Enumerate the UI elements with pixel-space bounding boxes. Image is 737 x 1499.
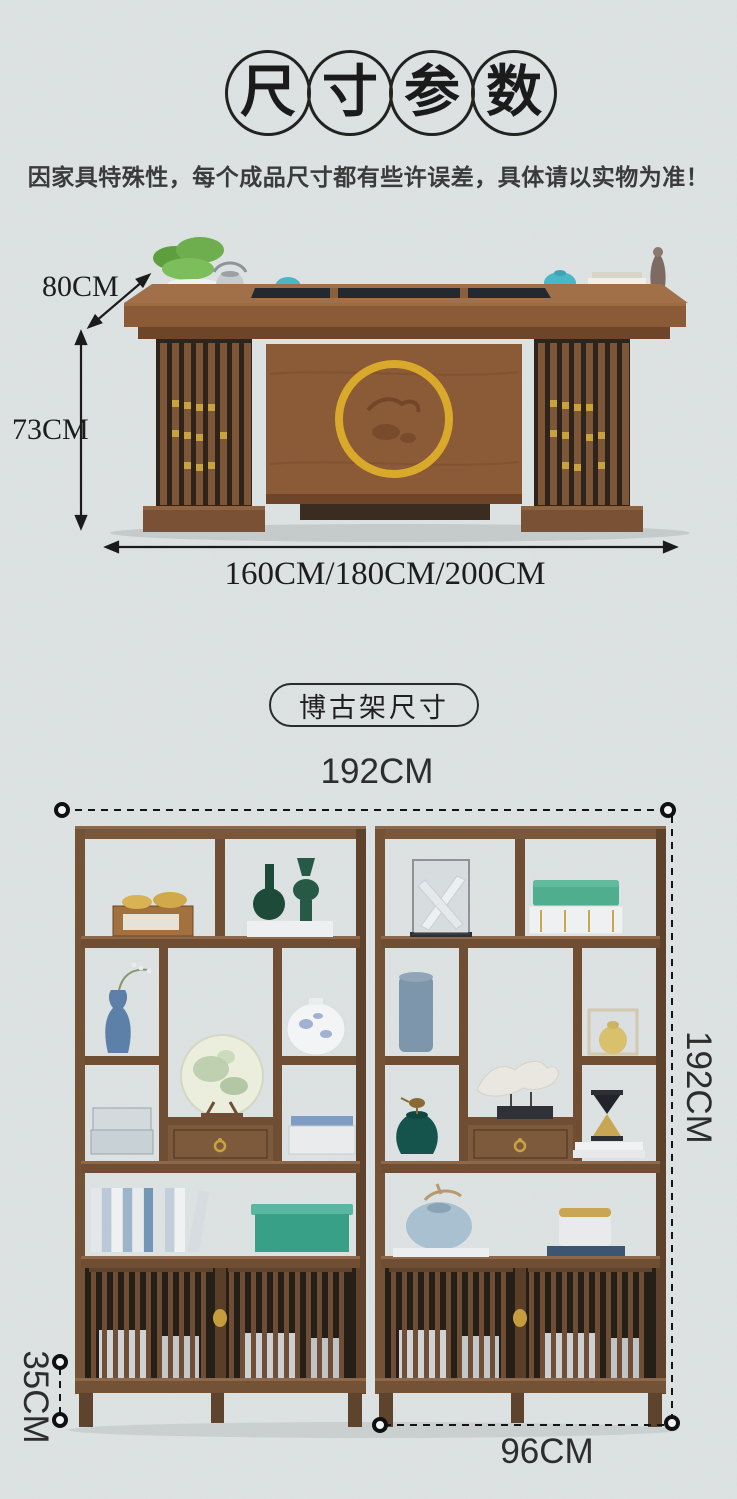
shelf-section-title: 博古架尺寸 xyxy=(299,686,449,725)
title-character: 参 xyxy=(404,65,460,121)
product-dimensions-page: 尺 寸 参 数 因家具特殊性，每个成品尺寸都有些许误差，具体请以实物为准！ 80… xyxy=(0,0,737,1499)
desk-depth-label: 80CM xyxy=(42,270,119,304)
furniture-illustration xyxy=(0,0,737,1499)
desk-body xyxy=(124,284,688,532)
shelf-base-height-label: 35CM xyxy=(15,1342,55,1452)
title-character-circle: 尺 xyxy=(225,50,311,136)
desk-illustration xyxy=(76,237,690,552)
desk-width-label: 160CM/180CM/200CM xyxy=(85,556,685,593)
title-character-circle: 参 xyxy=(389,50,475,136)
title-character: 尺 xyxy=(240,65,296,121)
title-character: 数 xyxy=(486,65,542,121)
title-character-circle: 数 xyxy=(471,50,557,136)
shelf-section-badge: 博古架尺寸 xyxy=(269,683,479,727)
shelf-unit-width-label: 96CM xyxy=(457,1432,637,1472)
shelf-height-label: 192CM xyxy=(678,1031,718,1141)
title-character: 寸 xyxy=(322,65,378,121)
notice-text: 因家具特殊性，每个成品尺寸都有些许误差，具体请以实物为准！ xyxy=(0,158,737,192)
desk-height-label: 73CM xyxy=(12,413,89,447)
shelf-width-label: 192CM xyxy=(277,752,477,792)
title-character-circle: 寸 xyxy=(307,50,393,136)
